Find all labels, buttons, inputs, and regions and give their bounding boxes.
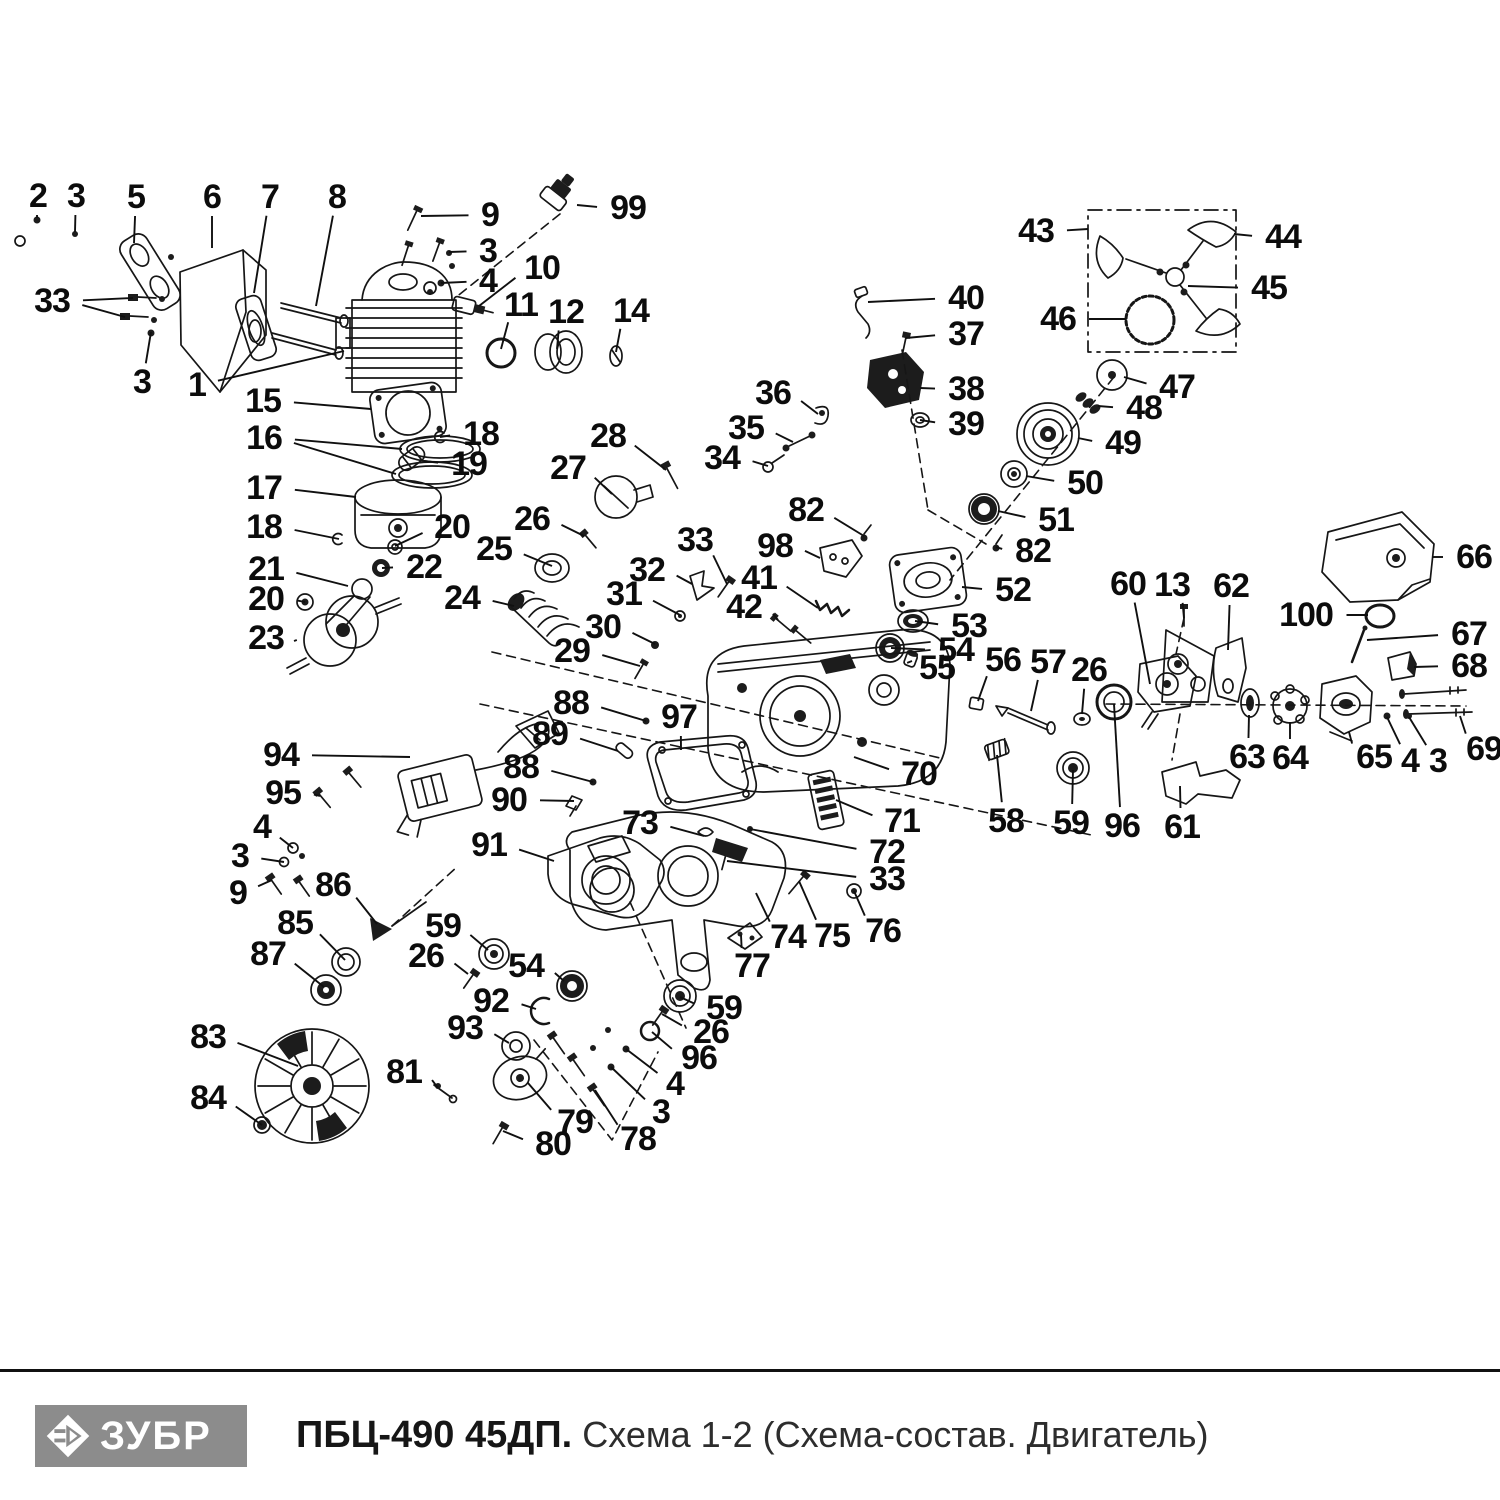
part-number-label: 1 bbox=[188, 366, 206, 404]
callout-2: 2 bbox=[29, 177, 47, 218]
callout-23: 23 bbox=[248, 619, 297, 657]
callout-75: 75 bbox=[799, 881, 850, 955]
part-number-label: 69 bbox=[1466, 730, 1500, 768]
part-number-label: 49 bbox=[1105, 424, 1141, 462]
leader-line bbox=[522, 1004, 536, 1009]
callout-3: 3 bbox=[133, 332, 151, 401]
leader-line bbox=[312, 755, 410, 757]
part-number-label: 80 bbox=[535, 1125, 571, 1163]
callout-96: 96 bbox=[1104, 704, 1140, 845]
part-number-label: 18 bbox=[246, 508, 282, 546]
part-number-label: 37 bbox=[948, 315, 984, 353]
part-flywheel bbox=[254, 1029, 369, 1143]
part-number-label: 78 bbox=[620, 1120, 656, 1158]
callout-24: 24 bbox=[444, 579, 514, 617]
leader-line bbox=[635, 446, 666, 470]
part-number-label: 26 bbox=[1071, 651, 1107, 689]
leader-line bbox=[218, 351, 344, 381]
leader-line bbox=[577, 205, 597, 207]
callout-85: 85 bbox=[277, 904, 345, 960]
callout-33: 33 bbox=[727, 860, 905, 898]
part-number-label: 61 bbox=[1164, 808, 1200, 846]
part-number-label: 38 bbox=[948, 370, 984, 408]
leader-line bbox=[295, 964, 324, 987]
callout-46: 46 bbox=[1040, 300, 1126, 338]
part-number-label: 84 bbox=[190, 1079, 227, 1117]
part-number-label: 24 bbox=[444, 579, 481, 617]
part-number-label: 4 bbox=[1401, 742, 1420, 780]
callout-91: 91 bbox=[471, 826, 554, 864]
callout-33: 33 bbox=[34, 282, 133, 320]
callout-30: 30 bbox=[585, 608, 655, 646]
part-o-ring bbox=[487, 339, 515, 367]
leader-line bbox=[805, 551, 820, 558]
callout-77: 77 bbox=[734, 935, 770, 985]
leader-line bbox=[1367, 635, 1438, 640]
leader-line bbox=[236, 1106, 262, 1125]
part-number-label: 48 bbox=[1126, 389, 1162, 427]
schema-label: Схема 1-2 (Схема-состав. Двигатель) bbox=[582, 1414, 1208, 1455]
part-number-label: 46 bbox=[1040, 300, 1076, 338]
part-number-label: 94 bbox=[263, 736, 300, 774]
part-number-label: 62 bbox=[1213, 567, 1249, 605]
part-number-label: 13 bbox=[1154, 566, 1190, 604]
leader-line bbox=[854, 757, 889, 769]
leader-line bbox=[83, 298, 133, 300]
part-number-label: 45 bbox=[1251, 269, 1287, 307]
callout-33: 33 bbox=[677, 521, 727, 584]
part-number-label: 65 bbox=[1356, 738, 1392, 776]
callout-95: 95 bbox=[265, 774, 320, 812]
part-clutch-drum-stack bbox=[969, 360, 1127, 524]
callout-76: 76 bbox=[854, 891, 901, 950]
part-number-label: 34 bbox=[704, 439, 741, 477]
part-number-label: 73 bbox=[622, 804, 658, 842]
part-number-label: 76 bbox=[865, 912, 901, 950]
leader-line bbox=[1031, 680, 1038, 711]
callout-19: 19 bbox=[424, 445, 487, 483]
leader-line bbox=[501, 322, 508, 349]
part-muffler-screws bbox=[120, 294, 165, 337]
leader-line bbox=[503, 1131, 523, 1139]
callout-18: 18 bbox=[246, 508, 339, 546]
leader-line bbox=[421, 215, 469, 216]
part-number-label: 33 bbox=[677, 521, 713, 559]
leader-line bbox=[632, 633, 655, 644]
part-number-label: 55 bbox=[919, 649, 955, 687]
callout-78: 78 bbox=[595, 1090, 656, 1158]
part-number-label: 57 bbox=[1030, 643, 1066, 681]
part-number-label: 4 bbox=[253, 808, 272, 846]
leader-line bbox=[1072, 770, 1073, 804]
callout-99: 99 bbox=[577, 189, 646, 227]
part-number-label: 77 bbox=[734, 947, 770, 985]
leader-line bbox=[551, 771, 593, 782]
part-number-label: 70 bbox=[901, 755, 937, 793]
callout-54: 54 bbox=[508, 947, 564, 985]
part-number-label: 3 bbox=[1429, 742, 1447, 780]
leader-line bbox=[1098, 406, 1113, 407]
leader-line bbox=[540, 800, 574, 801]
part-number-label: 15 bbox=[245, 382, 281, 420]
part-number-label: 99 bbox=[610, 189, 646, 227]
leader-line bbox=[611, 1067, 645, 1099]
callout-37: 37 bbox=[906, 315, 984, 353]
leader-line bbox=[1124, 377, 1147, 383]
part-number-label: 42 bbox=[726, 588, 762, 626]
callout-82: 82 bbox=[788, 491, 864, 536]
part-number-label: 59 bbox=[1053, 804, 1089, 842]
leader-line bbox=[146, 332, 151, 363]
part-number-label: 11 bbox=[504, 286, 538, 324]
part-oil-pump bbox=[854, 286, 929, 427]
part-number-label: 86 bbox=[315, 866, 351, 904]
part-number-label: 93 bbox=[447, 1009, 483, 1047]
part-clutch-box bbox=[1088, 210, 1236, 352]
callout-28: 28 bbox=[590, 417, 666, 470]
part-number-label: 95 bbox=[265, 774, 301, 812]
callout-61: 61 bbox=[1164, 786, 1200, 846]
leader-line bbox=[997, 755, 1002, 802]
part-number-label: 91 bbox=[471, 826, 507, 864]
part-clutch bbox=[1096, 221, 1240, 344]
part-starter-housing bbox=[548, 836, 664, 918]
part-primer bbox=[595, 476, 653, 518]
model-label: ПБЦ-490 45ДП. bbox=[296, 1414, 572, 1456]
callout-36: 36 bbox=[755, 374, 818, 414]
brand-text: ЗУБР bbox=[100, 1416, 212, 1456]
part-number-label: 17 bbox=[246, 469, 282, 507]
leader-line bbox=[653, 601, 680, 615]
leader-line bbox=[727, 861, 856, 877]
leader-line bbox=[449, 251, 467, 252]
callout-17: 17 bbox=[246, 469, 356, 507]
part-number-label: 40 bbox=[948, 279, 984, 317]
leader-line bbox=[1067, 229, 1088, 230]
part-number-label: 33 bbox=[869, 860, 905, 898]
callout-50: 50 bbox=[1026, 464, 1103, 502]
callout-84: 84 bbox=[190, 1079, 262, 1125]
callout-65: 65 bbox=[1349, 732, 1392, 776]
leader-line bbox=[1078, 438, 1092, 441]
leader-line bbox=[799, 881, 816, 920]
part-number-label: 74 bbox=[770, 918, 807, 956]
footer-divider bbox=[0, 1369, 1500, 1372]
callout-49: 49 bbox=[1078, 424, 1141, 462]
callout-56: 56 bbox=[978, 641, 1021, 701]
callout-27: 27 bbox=[550, 449, 612, 494]
callout-14: 14 bbox=[613, 292, 650, 352]
leader-line bbox=[1349, 732, 1352, 744]
callout-48: 48 bbox=[1098, 389, 1162, 427]
leader-line bbox=[1414, 666, 1438, 667]
part-oiler-linkage bbox=[763, 407, 828, 472]
callout-96: 96 bbox=[652, 1032, 717, 1077]
callout-45: 45 bbox=[1188, 269, 1287, 307]
part-number-label: 100 bbox=[1279, 596, 1333, 634]
part-number-label: 66 bbox=[1456, 538, 1492, 576]
callout-26: 26 bbox=[514, 500, 584, 538]
leader-line bbox=[834, 518, 864, 536]
callout-86: 86 bbox=[315, 866, 377, 924]
part-number-label: 58 bbox=[988, 802, 1024, 840]
leader-line bbox=[295, 490, 356, 497]
callout-9: 9 bbox=[229, 874, 272, 912]
part-number-label: 97 bbox=[661, 698, 697, 736]
leader-line bbox=[561, 525, 584, 536]
part-number-label: 3 bbox=[231, 837, 249, 875]
part-number-label: 19 bbox=[451, 445, 487, 483]
part-cover-group bbox=[820, 525, 1002, 614]
part-number-label: 52 bbox=[995, 571, 1031, 609]
callout-64: 64 bbox=[1272, 722, 1309, 777]
callout-94: 94 bbox=[263, 736, 410, 774]
part-screw bbox=[490, 1121, 510, 1146]
leader-line bbox=[316, 216, 333, 306]
part-number-label: 7 bbox=[261, 178, 279, 216]
leader-line bbox=[441, 282, 467, 283]
callout-39: 39 bbox=[920, 405, 984, 443]
footer-caption: ПБЦ-490 45ДП.Схема 1-2 (Схема-состав. Дв… bbox=[296, 1414, 1209, 1457]
part-bolt bbox=[660, 460, 682, 490]
leader-line bbox=[1082, 689, 1084, 714]
callout-57: 57 bbox=[1030, 643, 1066, 711]
leader-line bbox=[1026, 476, 1054, 481]
leader-line bbox=[776, 433, 793, 442]
callout-80: 80 bbox=[503, 1125, 571, 1163]
leader-line bbox=[395, 533, 423, 546]
brand-logo: ЗУБР bbox=[35, 1405, 247, 1467]
page: 2356789993410111214333115161819171820262… bbox=[0, 0, 1500, 1500]
part-number-label: 81 bbox=[386, 1053, 422, 1091]
leader-line bbox=[868, 299, 935, 302]
exploded-diagram: 2356789993410111214333115161819171820262… bbox=[0, 0, 1500, 1500]
part-oil-seal bbox=[535, 554, 569, 582]
leader-line bbox=[1460, 716, 1466, 734]
leader-line bbox=[254, 216, 266, 293]
callout-8: 8 bbox=[316, 178, 346, 306]
part-number-label: 36 bbox=[755, 374, 791, 412]
callout-5: 5 bbox=[127, 178, 145, 243]
leader-line bbox=[258, 880, 272, 886]
leader-line bbox=[1248, 715, 1249, 738]
callout-6: 6 bbox=[203, 178, 221, 248]
callout-81: 81 bbox=[386, 1053, 438, 1091]
callout-4: 4 bbox=[253, 808, 293, 848]
part-number-label: 43 bbox=[1018, 212, 1054, 250]
part-number-label: 12 bbox=[548, 293, 584, 331]
leader-line bbox=[595, 1090, 618, 1125]
callout-66: 66 bbox=[1432, 538, 1492, 576]
part-number-label: 3 bbox=[133, 363, 151, 401]
leader-line bbox=[652, 1032, 672, 1049]
callout-43: 43 bbox=[1018, 212, 1088, 250]
leader-line bbox=[524, 554, 552, 566]
leader-line bbox=[978, 676, 987, 701]
leader-line bbox=[601, 707, 646, 721]
callout-87: 87 bbox=[250, 935, 324, 987]
callout-62: 62 bbox=[1213, 567, 1249, 650]
callout-3: 3 bbox=[67, 177, 85, 232]
leader-line bbox=[998, 511, 1025, 517]
part-number-label: 47 bbox=[1159, 368, 1195, 406]
callout-9: 9 bbox=[421, 196, 499, 234]
part-number-label: 33 bbox=[34, 282, 70, 320]
part-number-label: 6 bbox=[203, 178, 221, 216]
part-number-label: 60 bbox=[1110, 565, 1146, 603]
part-bottom-fasteners bbox=[547, 1022, 659, 1108]
callout-16: 16 bbox=[246, 419, 402, 474]
leader-line bbox=[1188, 286, 1238, 288]
callout-82: 82 bbox=[996, 532, 1051, 570]
part-number-label: 5 bbox=[127, 178, 145, 216]
part-number-label: 2 bbox=[29, 177, 47, 215]
callout-26: 26 bbox=[1071, 651, 1107, 714]
leader-line bbox=[920, 388, 935, 389]
leader-line bbox=[382, 567, 393, 568]
part-number-label: 29 bbox=[554, 632, 590, 670]
leader-line bbox=[296, 573, 348, 586]
part-piston bbox=[355, 480, 441, 548]
callout-58: 58 bbox=[988, 755, 1024, 840]
part-number-label: 82 bbox=[1015, 532, 1051, 570]
leader-line bbox=[134, 216, 135, 243]
part-number-label: 44 bbox=[1265, 218, 1302, 256]
leader-line bbox=[294, 402, 371, 409]
callout-90: 90 bbox=[491, 781, 574, 819]
part-small-fasteners bbox=[15, 217, 174, 261]
part-number-label: 3 bbox=[67, 177, 85, 215]
part-number-label: 16 bbox=[246, 419, 282, 457]
leader-line bbox=[294, 640, 297, 641]
part-number-label: 20 bbox=[248, 580, 284, 618]
part-screw bbox=[579, 528, 599, 550]
part-number-label: 83 bbox=[190, 1018, 226, 1056]
leader-line bbox=[662, 1014, 682, 1025]
callout-60: 60 bbox=[1110, 565, 1150, 684]
part-number-label: 82 bbox=[788, 491, 824, 529]
callout-20: 20 bbox=[248, 580, 305, 618]
part-number-label: 75 bbox=[814, 917, 850, 955]
part-number-label: 14 bbox=[613, 292, 650, 330]
part-number-label: 9 bbox=[229, 874, 247, 912]
part-number-label: 68 bbox=[1451, 647, 1487, 685]
part-number-label: 39 bbox=[948, 405, 984, 443]
callout-69: 69 bbox=[1460, 716, 1500, 768]
leader-line bbox=[907, 661, 912, 663]
part-number-label: 10 bbox=[524, 249, 560, 287]
part-number-label: 56 bbox=[985, 641, 1021, 679]
leader-line bbox=[454, 963, 468, 974]
callout-38: 38 bbox=[920, 370, 984, 408]
brand-arrow-icon bbox=[45, 1413, 91, 1459]
part-number-label: 87 bbox=[250, 935, 286, 973]
parts-sketch bbox=[15, 168, 1472, 1146]
callout-40: 40 bbox=[868, 279, 984, 317]
part-carb-train bbox=[1241, 676, 1372, 741]
callout-68: 68 bbox=[1414, 647, 1487, 685]
part-number-label: 30 bbox=[585, 608, 621, 646]
part-number-label: 54 bbox=[508, 947, 545, 985]
part-number-label: 26 bbox=[408, 937, 444, 975]
part-number-label: 23 bbox=[248, 619, 284, 657]
part-airbox-group bbox=[1322, 512, 1472, 720]
part-number-label: 96 bbox=[681, 1039, 717, 1077]
part-number-label: 8 bbox=[328, 178, 346, 216]
part-head-screws bbox=[398, 205, 455, 295]
leader-line bbox=[1135, 603, 1150, 684]
part-oiler-drive bbox=[969, 697, 1090, 784]
callout-52: 52 bbox=[962, 571, 1031, 609]
leader-line bbox=[82, 305, 125, 317]
part-number-label: 22 bbox=[406, 548, 442, 586]
leader-line bbox=[756, 893, 770, 922]
part-number-label: 96 bbox=[1104, 807, 1140, 845]
leader-line bbox=[602, 655, 640, 666]
leader-line bbox=[356, 898, 377, 924]
callout-63: 63 bbox=[1229, 715, 1265, 776]
part-number-label: 25 bbox=[476, 530, 512, 568]
leader-line bbox=[295, 530, 339, 539]
part-number-label: 50 bbox=[1067, 464, 1103, 502]
part-number-label: 27 bbox=[550, 449, 586, 487]
part-number-label: 28 bbox=[590, 417, 626, 455]
part-plug-cap bbox=[539, 168, 581, 212]
part-number-label: 64 bbox=[1272, 739, 1309, 777]
leader-line bbox=[713, 555, 727, 584]
part-number-label: 90 bbox=[491, 781, 527, 819]
part-number-label: 63 bbox=[1229, 738, 1265, 776]
callout-44: 44 bbox=[1234, 218, 1302, 256]
part-number-label: 9 bbox=[481, 196, 499, 234]
part-number-label: 20 bbox=[434, 508, 470, 546]
leader-line bbox=[787, 587, 818, 608]
leader-line bbox=[580, 739, 618, 751]
part-muffler-plate bbox=[116, 230, 184, 314]
leader-line bbox=[1409, 717, 1426, 745]
part-number-label: 26 bbox=[514, 500, 550, 538]
